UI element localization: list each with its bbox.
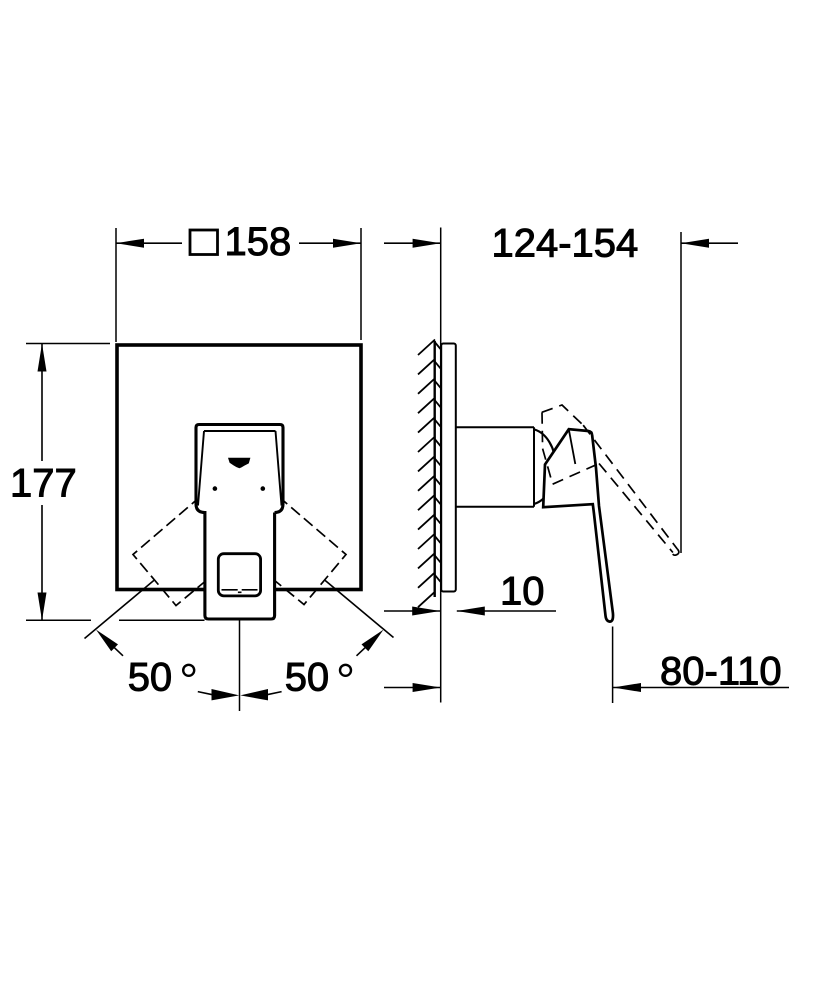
svg-text:80-110: 80-110: [660, 650, 782, 694]
svg-text:10: 10: [500, 570, 545, 614]
svg-text:124-154: 124-154: [492, 222, 639, 266]
svg-text:177: 177: [10, 462, 77, 506]
svg-text:50: 50: [285, 656, 330, 700]
svg-text:50: 50: [128, 656, 173, 700]
svg-text:158: 158: [225, 220, 292, 264]
